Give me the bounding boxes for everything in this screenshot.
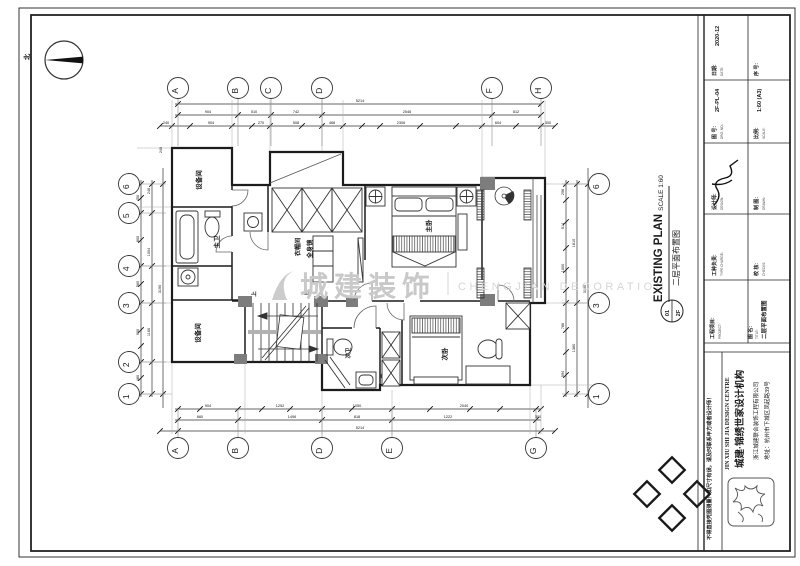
- room-label-second-bath: 次卫: [344, 347, 352, 359]
- room-label-mirror: 全身镜: [306, 239, 314, 259]
- company-name-en: JIN XIU SHI JIA DESIGN CENTRE: [725, 377, 731, 470]
- grid-bubble-right-3: 3: [562, 293, 610, 314]
- second-bath-fixtures: [325, 339, 387, 388]
- plan-title-scale: SCALE 1:60: [658, 175, 665, 211]
- dim-text-38: 594: [561, 371, 565, 377]
- dim-text-9: 508: [293, 121, 299, 125]
- company-name-cn: 城建·锦绣世家设计机构: [734, 369, 746, 468]
- watermark-en: CHENGJIAN DECORATION: [458, 281, 667, 293]
- grid-bubble-label-C: C: [263, 88, 273, 94]
- tb-date-label: 日期:: [711, 64, 718, 76]
- grid-bubble-right-1: 1: [562, 384, 610, 405]
- room-label-cloakroom: 衣帽间: [294, 238, 302, 257]
- dim-text-27: 560: [136, 281, 140, 287]
- plan-title-floor: 2F: [676, 309, 682, 316]
- dim-text-20: 818: [354, 415, 360, 419]
- dim-text-6: 240: [163, 121, 169, 125]
- tb-charge-label: 工种负责:: [711, 254, 718, 276]
- generated-texts: 设备间主卫衣帽间全身镜主卧设备间上上次卫次卧521490451074225468…: [22, 26, 771, 540]
- dim-text-0: 5214: [356, 99, 364, 103]
- dim-text-3: 742: [293, 110, 299, 114]
- room-label-equipment-2: 设备间: [193, 323, 202, 343]
- cloakroom-wardrobe: [272, 188, 363, 282]
- grid-bubble-bottom-B: B: [228, 409, 249, 459]
- grid-bubble-left-6: 6: [119, 174, 167, 195]
- tb-drawn-label: 制 图:: [753, 197, 760, 210]
- grid-bubble-label-D: D: [314, 448, 324, 454]
- grid-bubble-bottom-E: E: [382, 409, 403, 459]
- grid-bubble-label-1: 1: [591, 394, 601, 399]
- dim-text-24: 240: [159, 147, 163, 153]
- dim-text-22: 300: [535, 415, 541, 419]
- tb-charge-sub: TYPE CHARGE:: [720, 252, 724, 276]
- grid-bubble-label-G: G: [528, 447, 538, 454]
- dim-text-11: 2306: [397, 121, 405, 125]
- grid-bubble-right-6: 6: [562, 174, 610, 195]
- grid-bubble-left-5: 5: [119, 203, 167, 224]
- room-label-master-bath: 主卫: [212, 235, 221, 249]
- tb-title-value: 二层平面布置图: [760, 300, 768, 339]
- tb-scale-sub: SCALE:: [762, 128, 766, 139]
- plan-title-num: 01: [665, 310, 671, 316]
- dim-text-31: 1004: [147, 248, 151, 256]
- staircase: [248, 303, 322, 362]
- dim-text-10: 468: [329, 121, 335, 125]
- tb-check-sub: CHECKS:: [762, 262, 766, 276]
- dim-text-39: 1810: [572, 239, 576, 247]
- grid-bubble-bottom-A: A: [168, 409, 189, 459]
- dim-text-33: 3190: [158, 285, 162, 293]
- dim-text-1: 904: [205, 110, 211, 114]
- dim-text-2: 510: [251, 110, 257, 114]
- dim-text-34: 296: [561, 189, 565, 195]
- grid-bubble-left-1: 1: [119, 384, 167, 405]
- diamond-decoration: [634, 457, 709, 530]
- grid-bubble-left-2: 2: [119, 352, 167, 373]
- grid-bubble-label-A: A: [170, 448, 180, 454]
- plan-title-cn: 二层平面布置图: [671, 230, 681, 286]
- dim-text-29: 480: [136, 375, 140, 381]
- grid-bubble-label-6: 6: [121, 184, 131, 189]
- tb-designer-sub: DESIGN:: [720, 197, 724, 210]
- room-label-equipment-1: 设备间: [194, 170, 203, 190]
- dim-text-21: 1222: [444, 415, 452, 419]
- dim-text-13: 300: [545, 121, 551, 125]
- tb-project-label: 工程项目:: [709, 317, 716, 339]
- grid-bubble-label-3: 3: [121, 303, 131, 308]
- grid-bubble-label-6: 6: [591, 184, 601, 189]
- tb-project-sub: PROJECT:: [718, 323, 722, 339]
- tb-serial-label: 序 号:: [753, 63, 760, 77]
- tb-scale-label: 比例:: [753, 127, 760, 139]
- watermark-cn: 城建装饰: [300, 271, 436, 302]
- grid-bubble-label-3: 3: [591, 303, 601, 308]
- north-arrow-icon: [45, 41, 83, 79]
- dim-text-40: 1380: [572, 344, 576, 352]
- grid-bubble-top-D: D: [312, 78, 333, 147]
- grid-bubble-top-B: B: [228, 78, 249, 147]
- dim-text-23: 5214: [356, 426, 364, 430]
- tb-title-label: 图 名:: [747, 326, 754, 339]
- dim-text-12: 604: [495, 121, 501, 125]
- grid-bubble-label-1: 1: [121, 394, 131, 399]
- grid-bubble-top-C: C: [261, 78, 282, 147]
- dim-text-30: 246: [147, 188, 151, 194]
- grid-bubble-label-H: H: [533, 88, 543, 94]
- master-bed: [366, 187, 476, 267]
- tb-dwgno-label: 图 号:: [711, 126, 718, 139]
- dim-text-35: 514: [561, 223, 565, 229]
- dim-text-7: 904: [208, 121, 214, 125]
- grid-bubble-label-5: 5: [121, 213, 131, 218]
- grid-bubble-left-4: 4: [119, 256, 167, 277]
- grid-bubble-left-3: 3: [119, 293, 167, 314]
- tb-scale-value: 1:60 (A3): [757, 89, 763, 112]
- north-label: 北: [22, 53, 31, 60]
- room-label-second-bedroom: 次卧: [440, 347, 449, 361]
- company-seal: [728, 478, 774, 526]
- stair-label-up-1: 上: [250, 291, 258, 297]
- dim-text-4: 2546: [403, 110, 411, 114]
- dim-text-14: 904: [205, 404, 211, 408]
- dim-text-15: 1252: [276, 404, 284, 408]
- company-sub: 浙江城建联合装饰工程有限公司: [752, 382, 760, 460]
- dim-text-37: 786: [561, 323, 565, 329]
- tb-check-label: 校 核:: [753, 263, 760, 276]
- dim-text-28: 900: [136, 329, 140, 335]
- grid-bubble-label-2: 2: [121, 362, 131, 367]
- grid-bubble-label-B: B: [230, 88, 240, 94]
- plan-title-en: EXISTING PLAN: [653, 214, 665, 302]
- tb-designer-label: 设计师:: [711, 193, 718, 210]
- grid-bubble-label-A: A: [170, 88, 180, 94]
- dim-text-17: 2040: [460, 404, 468, 408]
- drawing-sheet: ABCDFHABDEG654321631 设备间主卫衣帽间全身镜主卧设备间上上次…: [0, 0, 800, 566]
- company-address: 地址：杭州市下城区凤起路39号: [763, 381, 771, 460]
- tb-title-sub: TITLE:: [755, 329, 759, 339]
- tb-dwgno-value: 2F-PL-04: [715, 88, 721, 112]
- dim-text-36: 1000: [561, 264, 565, 272]
- dim-text-18: 660: [197, 415, 203, 419]
- tb-date-value: 2020-12: [715, 26, 721, 46]
- grid-bubble-top-A: A: [168, 78, 189, 147]
- dim-text-26: 800: [136, 236, 140, 242]
- dim-text-16: 1050: [353, 404, 361, 408]
- grid-bubble-label-4: 4: [121, 266, 131, 271]
- dim-text-32: 1160: [147, 328, 151, 336]
- tb-disclaimer: 不得直接凭图测量！如尺寸有误，请及时联系甲方或者设计师！: [705, 395, 713, 540]
- dim-text-5: 812: [513, 110, 519, 114]
- grid-bubble-bottom-D: D: [312, 409, 333, 459]
- dim-text-25: 450: [136, 195, 140, 201]
- grid-bubble-label-B: B: [230, 448, 240, 454]
- grid-bubble-label-F: F: [484, 88, 494, 93]
- grid-bubble-label-D: D: [314, 88, 324, 94]
- dim-text-19: 1496: [288, 415, 296, 419]
- tb-dwgno-sub: DRG. NO.:: [720, 123, 724, 139]
- grid-bubble-top-F: F: [482, 78, 503, 147]
- plan-canvas: ABCDFHABDEG654321631 设备间主卫衣帽间全身镜主卧设备间上上次…: [0, 0, 800, 566]
- tb-date-sub: DATE:: [720, 67, 724, 76]
- tb-drawn-sub: DRAWN:: [762, 197, 766, 210]
- room-label-master-bedroom: 主卧: [424, 219, 433, 233]
- grid-bubble-label-E: E: [384, 448, 394, 454]
- grid-bubble-top-H: H: [531, 78, 552, 147]
- dim-text-8: 270: [258, 121, 264, 125]
